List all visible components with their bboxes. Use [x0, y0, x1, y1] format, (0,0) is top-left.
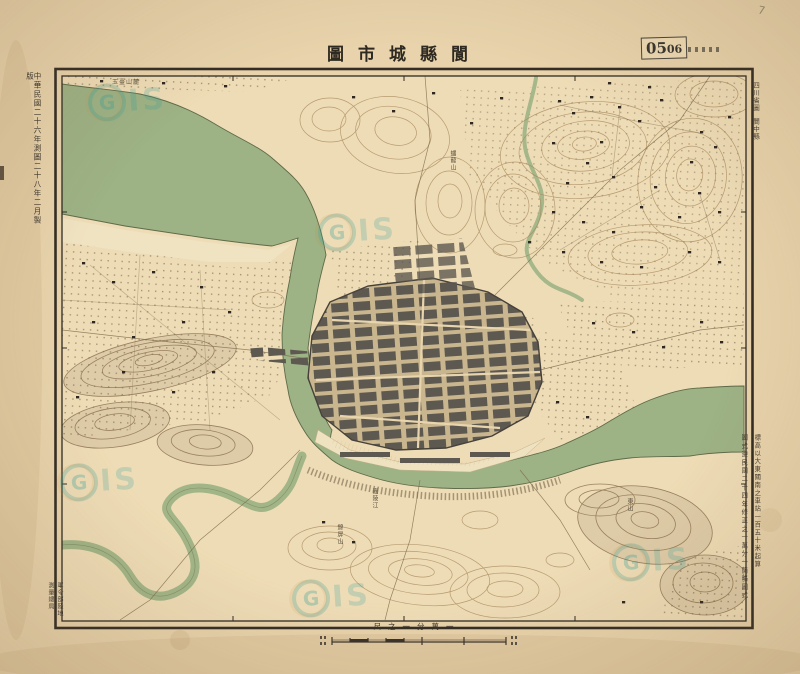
watermark-ring-icon: G — [59, 462, 100, 503]
map-title: 圖市城縣閬 — [327, 40, 482, 65]
gis-watermark: G IS — [317, 209, 398, 252]
county-note: 閬中縣 — [752, 118, 759, 141]
elevation-note: 標高以大東關南之車站一百五十米起算 — [753, 434, 759, 568]
survey-edition-note: 中華民國二十六年測圖二十八年二月製版 — [26, 72, 41, 232]
illegible-note-marks — [688, 47, 719, 52]
watermark-ring-icon: G — [317, 212, 358, 253]
province-note: 四川省圖 — [752, 82, 759, 112]
watermark-ring-icon: G — [611, 542, 652, 583]
gis-watermark: G IS — [611, 539, 692, 582]
gis-watermark: G IS — [59, 459, 140, 502]
gis-watermark: G IS — [291, 575, 372, 618]
symbol-style-note: 圖式遵民國二十四年修正之一萬分一簡略圖式 — [740, 434, 746, 600]
accession-stamp: 0506 — [641, 36, 688, 59]
place-label: 東山 — [626, 498, 632, 512]
watermark-ring-icon: G — [291, 578, 332, 619]
place-label: 蟠龍山 — [449, 150, 455, 171]
map-sheet: 圖市城縣閬 0506 中華民國二十六年測圖二十八年二月製版 四川省圖 閬中縣 標… — [0, 0, 800, 674]
scan-artifact — [0, 166, 4, 180]
stamp-number-large: 05 — [646, 39, 667, 58]
scale-label: 尺之一分萬一 — [352, 621, 482, 632]
place-label: 錦屏山 — [336, 524, 342, 545]
stamp-number-small: 06 — [667, 43, 683, 56]
place-label: 嘉陵江 — [371, 488, 377, 509]
gis-watermark: G IS — [87, 79, 168, 122]
watermark-ring-icon: G — [87, 82, 128, 123]
publisher-imprint-1: 軍令部陸地 — [56, 582, 62, 617]
publisher-imprint-2: 測量總局 — [47, 582, 53, 610]
